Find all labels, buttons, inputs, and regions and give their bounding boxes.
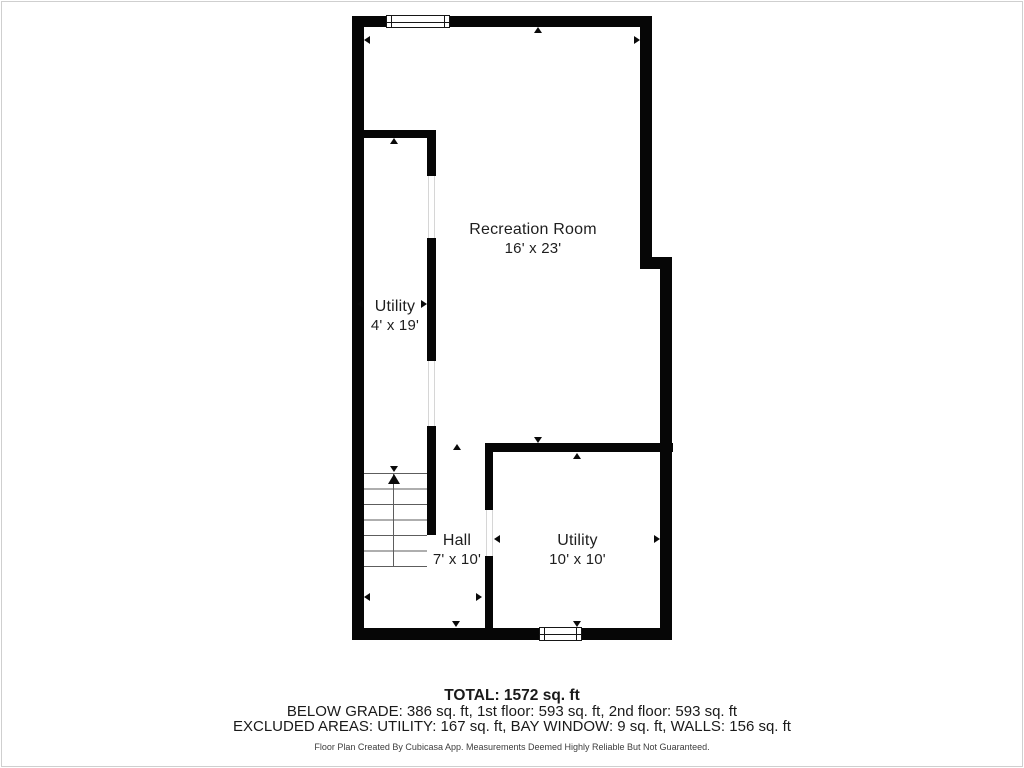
- measure-arrow-right-icon: [476, 593, 482, 601]
- measure-arrow-down-icon: [390, 466, 398, 472]
- room-name: Recreation Room: [433, 220, 633, 239]
- room-dimensions: 4' x 19': [350, 316, 440, 335]
- measure-arrow-right-icon: [654, 535, 660, 543]
- measure-arrow-up-icon: [390, 138, 398, 144]
- window-glass-line: [387, 22, 449, 23]
- measure-arrow-left-icon: [364, 36, 370, 44]
- summary-excluded: EXCLUDED AREAS: UTILITY: 167 sq. ft, BAY…: [0, 719, 1024, 735]
- room-dimensions: 10' x 10': [517, 550, 638, 569]
- measure-arrow-up-icon: [573, 453, 581, 459]
- window-symbol-bottom: [539, 627, 582, 641]
- measure-arrow-up-icon: [534, 27, 542, 33]
- room-dimensions: 16' x 23': [433, 239, 633, 258]
- window-end-cap: [544, 628, 545, 640]
- disclaimer-text: Floor Plan Created By Cubicasa App. Meas…: [0, 742, 1024, 752]
- wall-stairs-right: [427, 426, 436, 535]
- room-label-utility-small: Utility 4' x 19': [350, 297, 440, 335]
- wall-exterior-right-upper: [640, 16, 652, 269]
- measure-arrow-down-icon: [573, 621, 581, 627]
- window-end-cap: [391, 16, 392, 27]
- summary-total: TOTAL: 1572 sq. ft: [0, 688, 1024, 704]
- door-opening-utility-small-upper: [428, 176, 429, 238]
- door-opening-utility-small-lower: [428, 361, 429, 426]
- window-glass-line: [540, 634, 581, 635]
- room-name: Hall: [407, 531, 507, 550]
- measure-arrow-down-icon: [452, 621, 460, 627]
- window-end-cap: [576, 628, 577, 640]
- stairs-center-divider: [393, 473, 394, 567]
- room-name: Utility: [350, 297, 440, 316]
- room-label-recreation: Recreation Room 16' x 23': [433, 220, 633, 258]
- measure-arrow-up-icon: [453, 444, 461, 450]
- window-end-cap: [444, 16, 445, 27]
- wall-utility-small-top: [352, 130, 436, 138]
- stairs-up-arrow-icon: [388, 474, 400, 484]
- page-border: [1, 1, 1023, 767]
- wall-utility-large-left-upper: [485, 443, 493, 510]
- wall-utility-small-right-stub: [427, 130, 436, 176]
- wall-exterior-bottom: [352, 628, 672, 640]
- measure-arrow-left-icon: [364, 593, 370, 601]
- door-opening-utility-small-lower: [434, 361, 435, 426]
- measure-arrow-down-icon: [534, 437, 542, 443]
- room-label-hall: Hall 7' x 10': [407, 531, 507, 569]
- room-dimensions: 7' x 10': [407, 550, 507, 569]
- measure-arrow-right-icon: [634, 36, 640, 44]
- wall-utility-large-top: [485, 443, 673, 452]
- room-name: Utility: [517, 531, 638, 550]
- window-symbol-top: [386, 15, 450, 28]
- room-label-utility-large: Utility 10' x 10': [517, 531, 638, 569]
